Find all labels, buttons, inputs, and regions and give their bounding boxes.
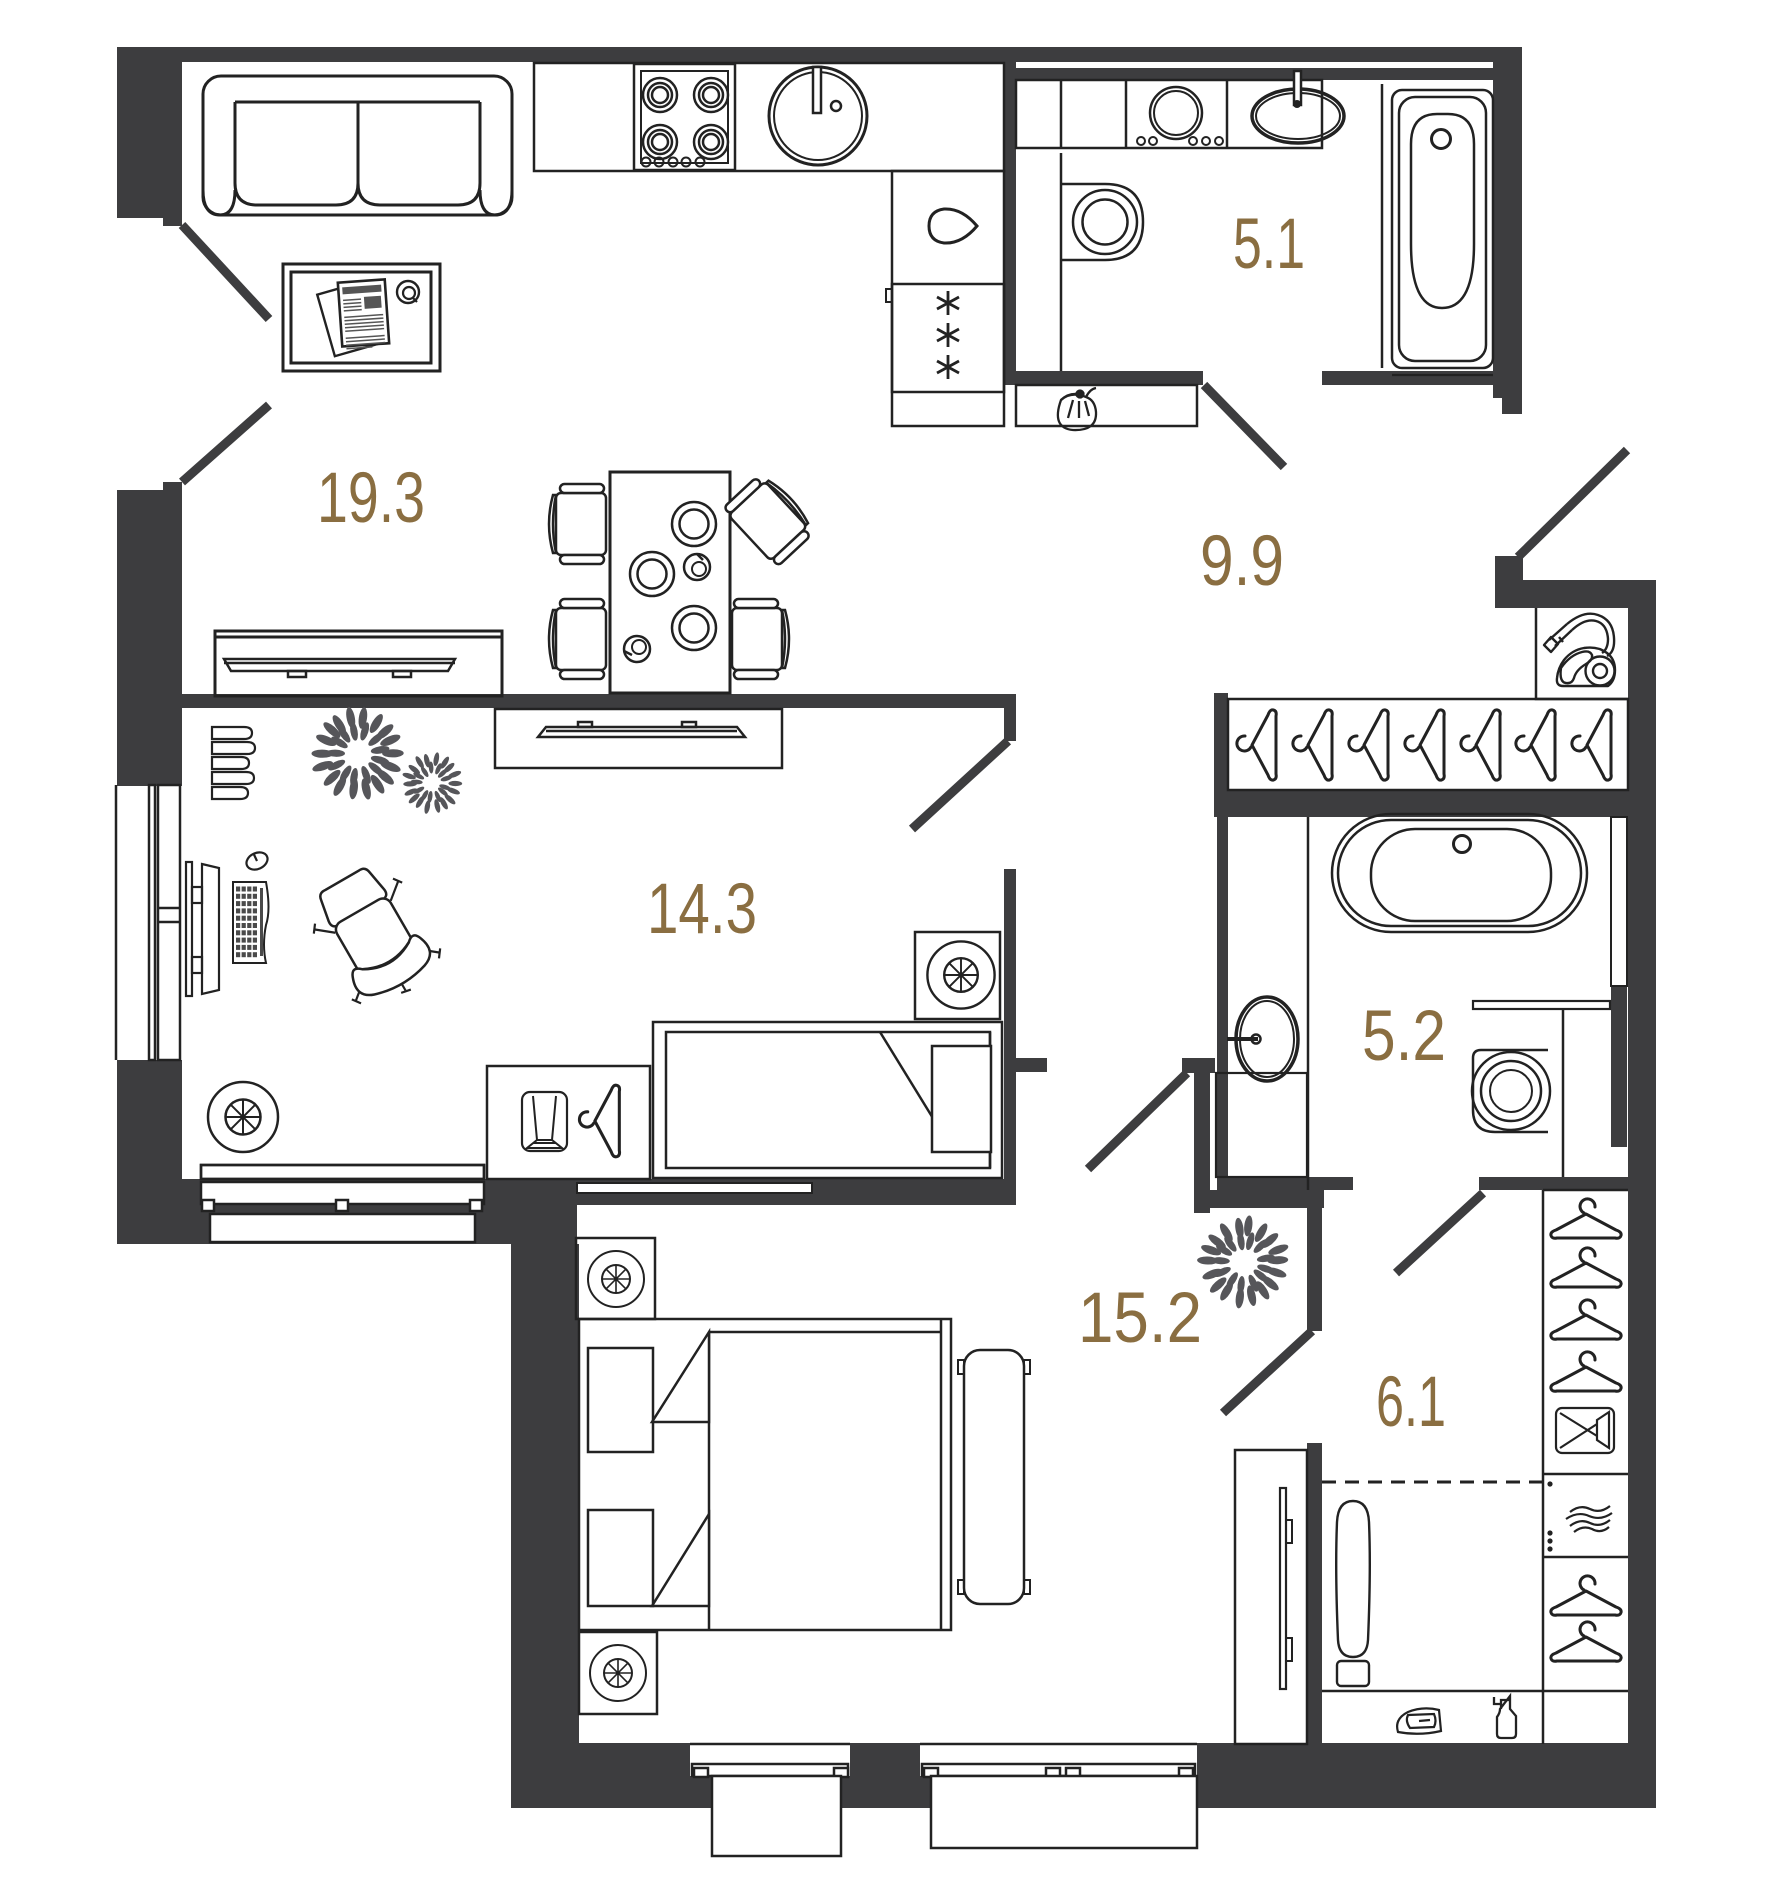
svg-text:14.3: 14.3 (647, 870, 757, 949)
svg-text:5.2: 5.2 (1362, 997, 1446, 1076)
svg-text:9.9: 9.9 (1200, 522, 1284, 601)
svg-text:6.1: 6.1 (1376, 1363, 1446, 1442)
svg-text:19.3: 19.3 (317, 459, 425, 538)
svg-text:5.1: 5.1 (1233, 205, 1305, 284)
svg-text:15.2: 15.2 (1078, 1279, 1202, 1358)
